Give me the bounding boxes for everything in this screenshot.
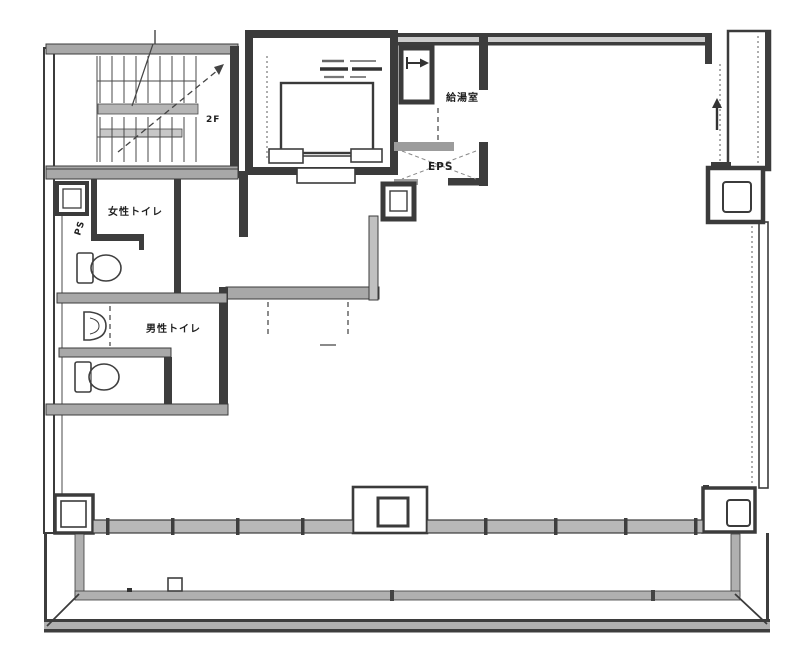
right-exterior-wall [759,222,768,488]
hall-bottom-wall [226,287,379,299]
balcony-floor-left [75,534,84,596]
balcony-bottom-edge [44,629,770,633]
kitchenette-label: 給湯室 [446,91,479,104]
elevator-shaft [249,34,394,183]
toilet-top-wall [46,169,238,179]
stair-right-wall [230,46,239,178]
balcony-right-edge [766,533,769,621]
balcony-drain-box [168,578,182,591]
stair-level-label: 2F [206,115,220,125]
stairwell: 2F [46,30,239,178]
kitchenette-room [401,48,432,102]
top-wall-outer [398,33,712,37]
right-wall-top-block [728,31,770,170]
toilet-bottom-wall [46,404,228,415]
column-below-eps [383,184,414,219]
balcony [44,533,770,633]
right-wall-outer-edge [765,31,770,170]
column-top-right [708,168,763,222]
balcony-floor-right [731,534,740,596]
balcony-tick-2 [651,590,655,601]
balcony-tick-1 [390,590,394,601]
balcony-dot [127,588,132,592]
eps-label: EPS [428,161,453,173]
column-bottom-right [703,488,755,532]
womens-door-stub [139,234,144,250]
balcony-bottom-outer-line [44,619,770,622]
column-bottom-center [353,487,427,533]
core-walls [219,171,379,415]
mens-stall-right-wall [164,357,172,407]
womens-toilet-label: 女性トイレ [108,205,163,218]
elevator-car [281,83,373,153]
hall-left-wall [239,171,248,237]
elevator-door-jamb-right [351,149,382,162]
kitchenette-partition-wall [479,34,488,90]
floor-plan-page: 2F 給湯室 [0,0,787,666]
floor-plan-drawing: 2F 給湯室 [0,0,787,666]
stair-treads-upper [100,56,196,103]
balcony-bottom-band [44,622,770,630]
mens-toilet: 男性トイレ [59,306,201,407]
womens-toilet: 女性トイレ [77,179,181,295]
stair-landing [98,104,198,114]
pipe-space-label: PS [73,219,87,236]
toilet-fixture-icon [77,253,121,283]
elevator-threshold [297,168,355,183]
kitchenette: 給湯室 [401,34,488,143]
toilet-mid-wall [57,293,227,303]
hall-right-wall [369,216,378,300]
stair-top-wall [46,44,238,54]
column-ps [57,183,87,214]
top-right-jog [705,36,712,64]
balcony-left-edge [44,533,47,623]
eps-shaft: EPS [394,142,488,186]
core-right-wall [219,287,228,415]
left-exterior-wall [44,48,54,533]
toilet-fixture-icon-2 [75,362,119,392]
womens-left-wall [91,179,97,241]
eps-top-band [394,142,454,151]
window-band-right [427,520,703,533]
elevator-door-jamb-left [269,149,303,163]
eps-bottom-wall [448,178,488,186]
mens-toilet-label: 男性トイレ [146,322,201,335]
stair-treads-lower [100,117,196,162]
mens-stall-wall [59,348,171,357]
balcony-floor-front [75,591,740,600]
womens-right-wall [174,179,181,295]
column-bottom-left [55,495,93,533]
urinal-icon [84,312,106,340]
womens-bottom-wall [91,234,141,241]
top-wall-inner [398,42,712,46]
window-band-left [93,520,353,533]
